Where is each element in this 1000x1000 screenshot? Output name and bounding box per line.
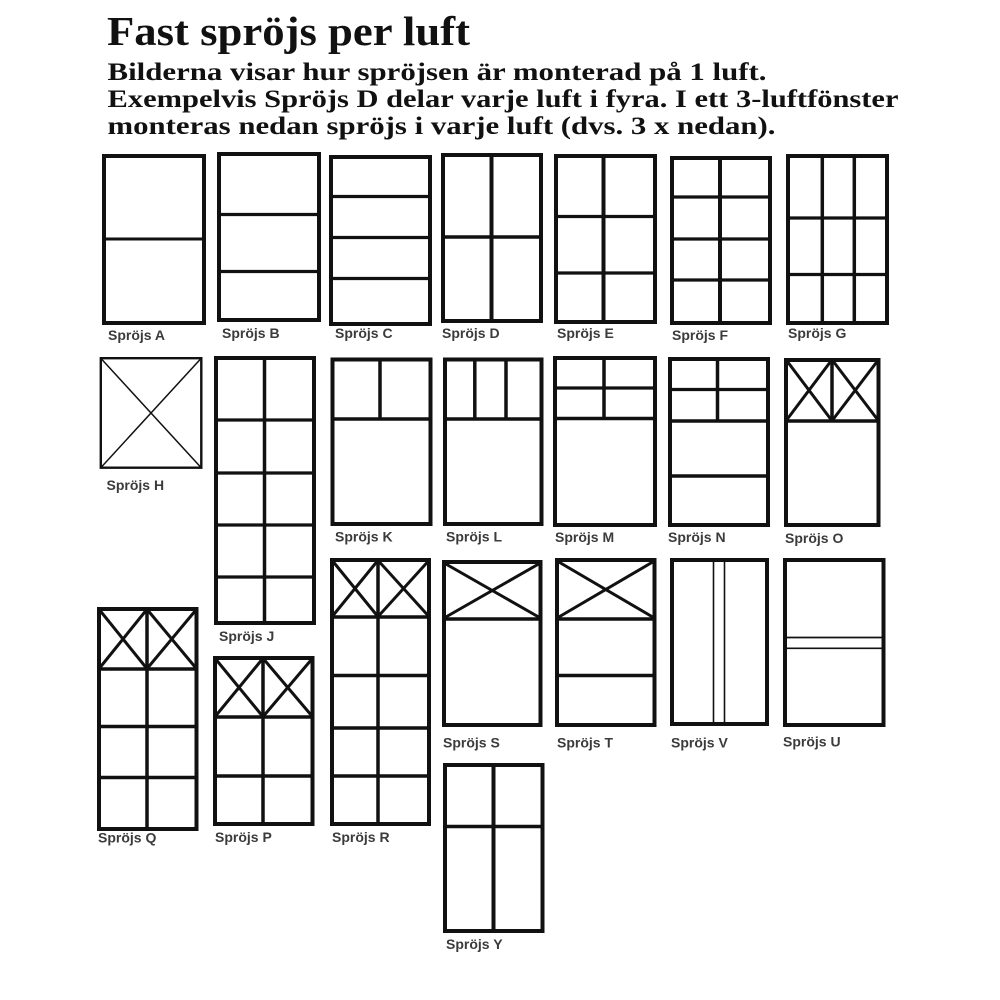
svg-text:Spröjs L: Spröjs L <box>446 529 502 545</box>
svg-text:Spröjs K: Spröjs K <box>335 529 393 545</box>
svg-text:Spröjs H: Spröjs H <box>107 477 165 493</box>
svg-text:Spröjs Y: Spröjs Y <box>446 936 503 952</box>
svg-text:Spröjs C: Spröjs C <box>335 325 393 341</box>
svg-text:Spröjs U: Spröjs U <box>783 734 841 750</box>
svg-text:Exempelvis Spröjs D delar varj: Exempelvis Spröjs D delar varje luft i f… <box>108 84 899 113</box>
svg-text:Bilderna visar hur spröjsen är: Bilderna visar hur spröjsen är monterad … <box>108 57 767 86</box>
svg-text:Spröjs G: Spröjs G <box>788 325 846 341</box>
svg-text:Spröjs M: Spröjs M <box>555 529 614 545</box>
svg-text:Fast spröjs per luft: Fast spröjs per luft <box>107 8 470 54</box>
svg-text:Spröjs R: Spröjs R <box>332 829 390 845</box>
svg-text:Spröjs S: Spröjs S <box>443 735 500 751</box>
svg-text:Spröjs A: Spröjs A <box>108 327 165 343</box>
svg-text:Spröjs D: Spröjs D <box>442 325 500 341</box>
svg-text:Spröjs N: Spröjs N <box>668 529 726 545</box>
svg-text:Spröjs V: Spröjs V <box>671 735 728 751</box>
svg-text:Spröjs P: Spröjs P <box>215 829 272 845</box>
svg-text:Spröjs T: Spröjs T <box>557 735 613 751</box>
svg-text:Spröjs F: Spröjs F <box>672 327 728 343</box>
svg-text:Spröjs J: Spröjs J <box>219 628 274 644</box>
svg-text:Spröjs O: Spröjs O <box>785 530 843 546</box>
svg-text:Spröjs Q: Spröjs Q <box>98 830 156 846</box>
svg-text:Spröjs B: Spröjs B <box>222 325 280 341</box>
svg-text:monteras nedan spröjs i varje: monteras nedan spröjs i varje luft (dvs.… <box>108 111 776 140</box>
svg-text:Spröjs E: Spröjs E <box>557 325 614 341</box>
